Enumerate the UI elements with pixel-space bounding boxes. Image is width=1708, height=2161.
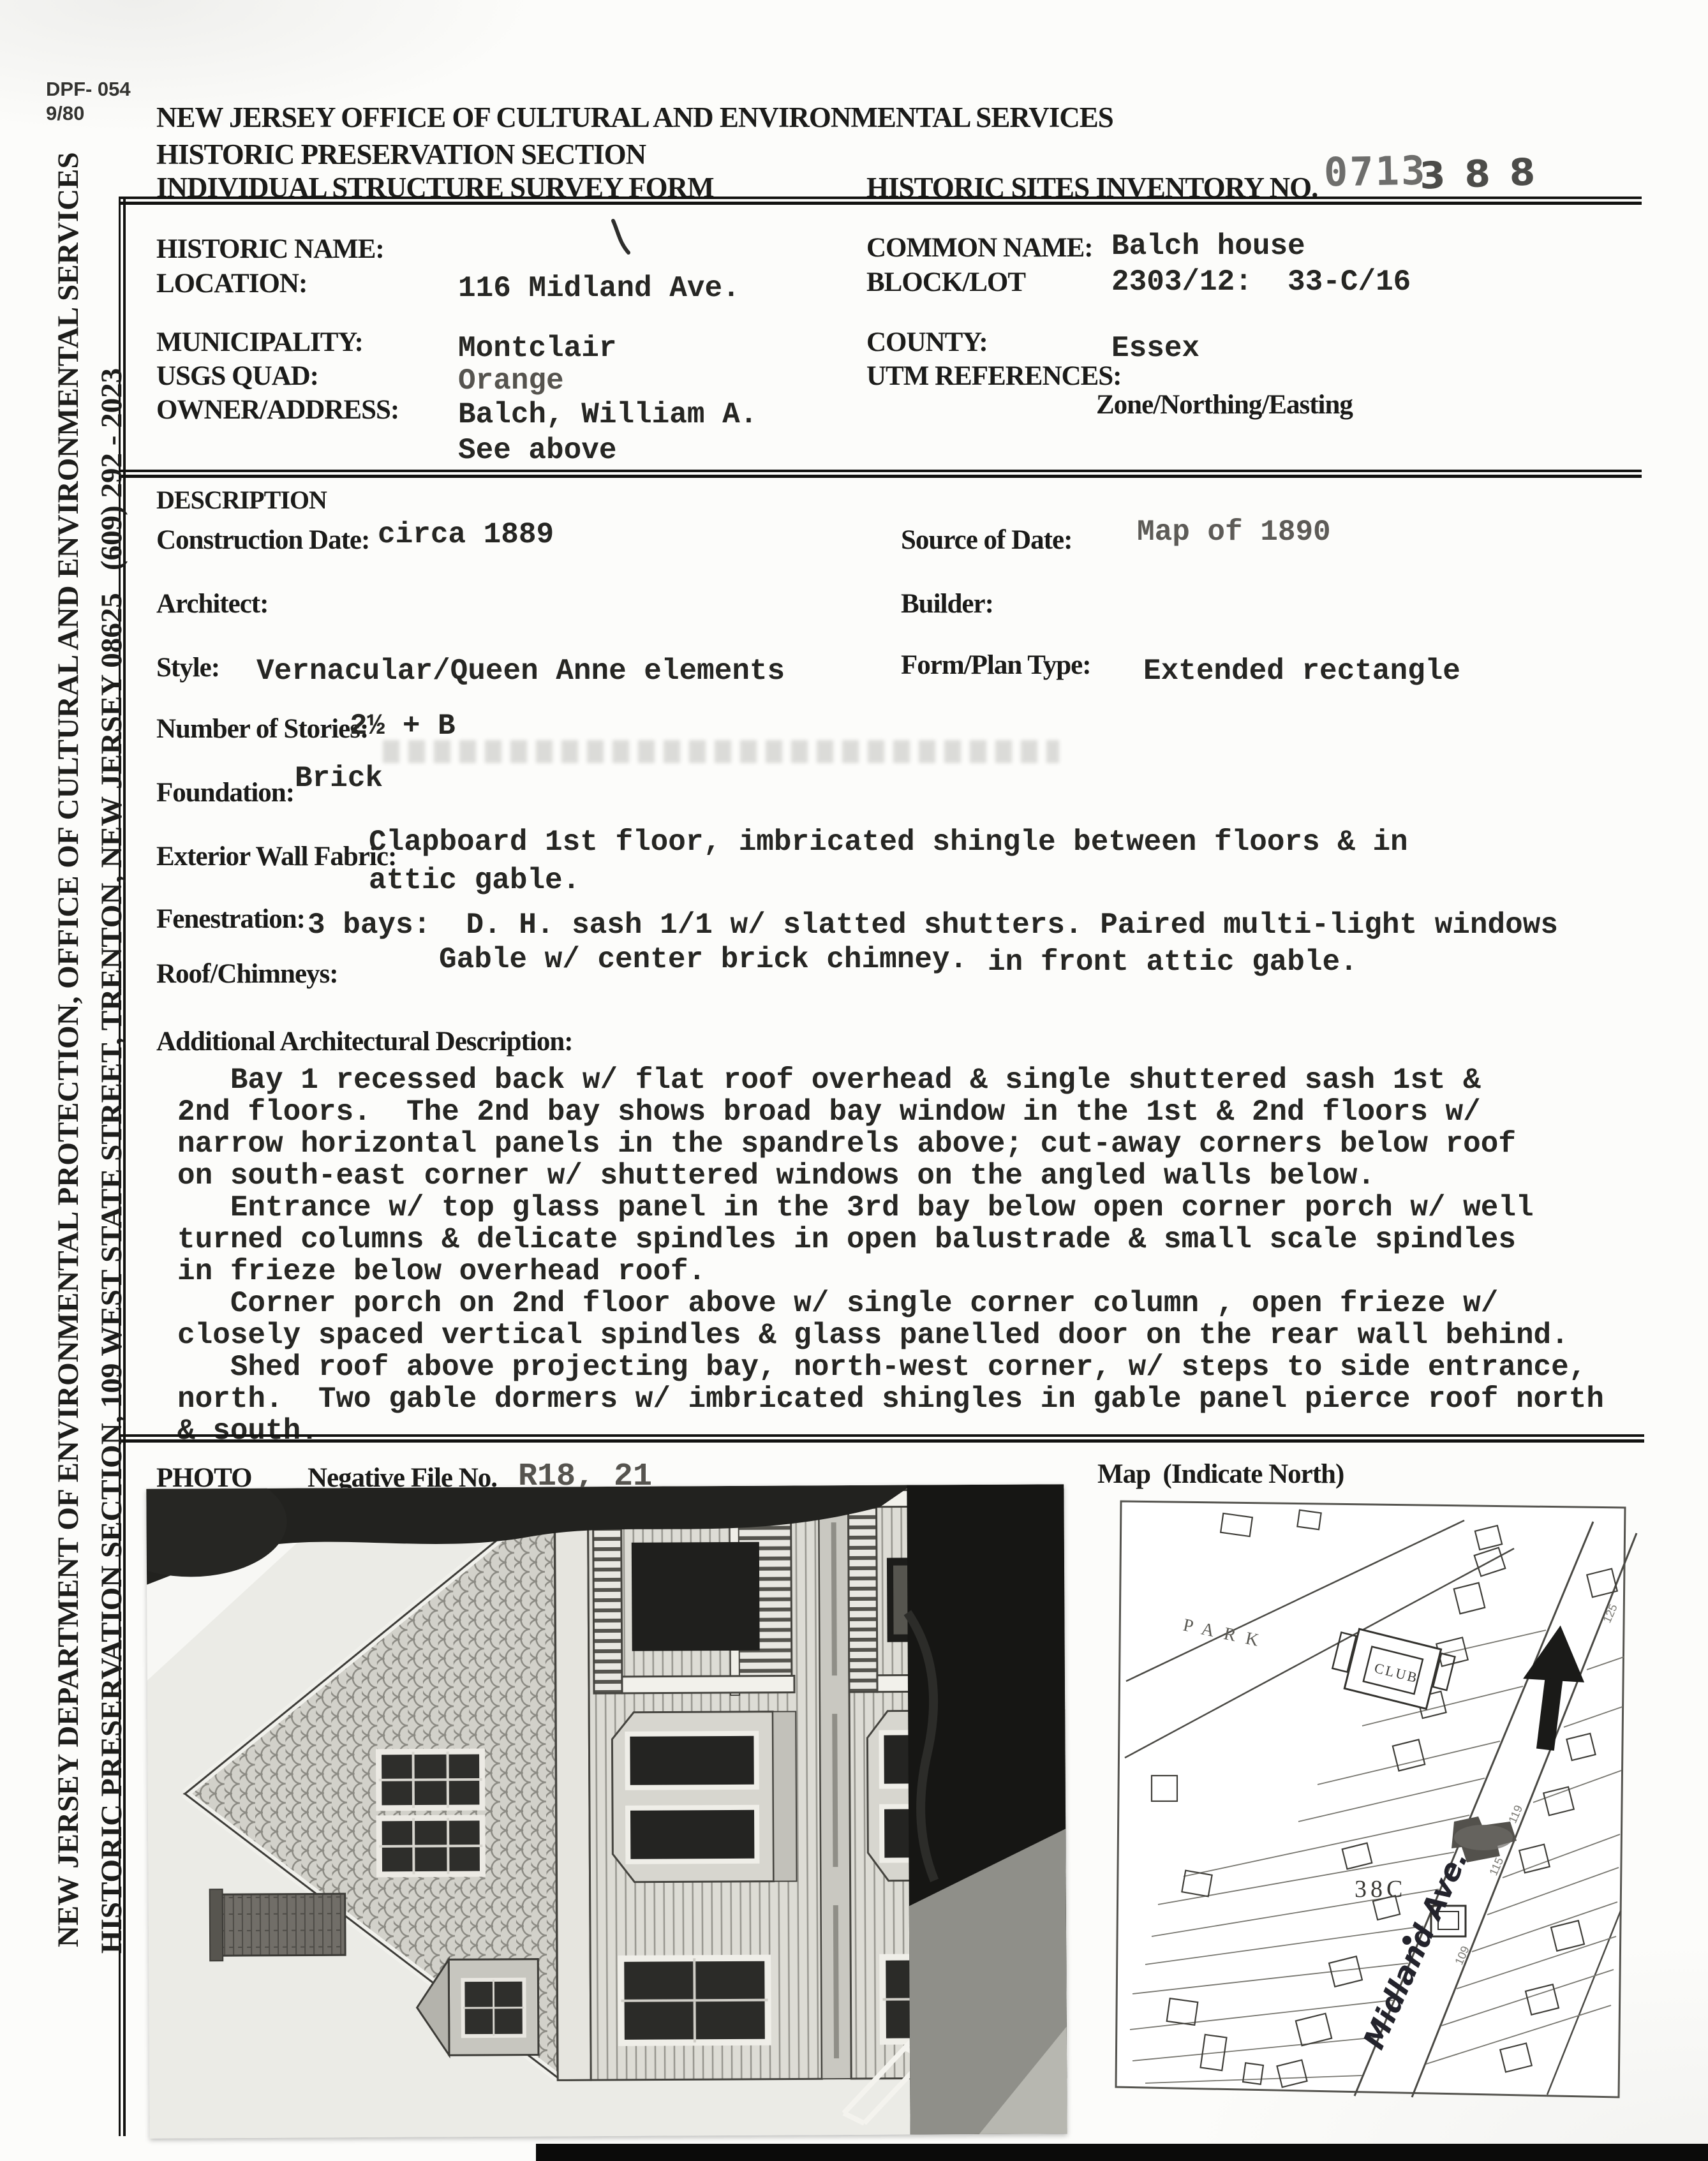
description-line: narrow horizontal panels in the spandrel… xyxy=(177,1128,1607,1160)
historic-name-label: HISTORIC NAME: xyxy=(156,234,384,265)
description-heading: DESCRIPTION xyxy=(156,485,327,515)
style-label: Style: xyxy=(156,652,219,683)
fenestration-value-line2: in front attic gable. xyxy=(988,946,1358,979)
county-value: Essex xyxy=(1111,332,1199,365)
photo-section-rule xyxy=(120,1434,1644,1443)
foundation-label: Foundation: xyxy=(156,777,294,808)
sidebar-address-line: HISTORIC PRESERVATION SECTION, 109 WEST … xyxy=(94,387,129,1954)
owner-address-value2: See above xyxy=(458,434,616,467)
roof-chimneys-label: Roof/Chimneys: xyxy=(156,958,338,990)
description-line: Shed roof above projecting bay, north-we… xyxy=(177,1351,1607,1383)
construction-date-value: circa 1889 xyxy=(378,518,554,551)
map-drawing: CLUB PARK 38C Midland Ave. 119 115 xyxy=(1107,1490,1640,2112)
municipality-label: MUNICIPALITY: xyxy=(156,327,363,358)
description-line: on south-east corner w/ shuttered window… xyxy=(177,1160,1607,1192)
wall-fabric-label: Exterior Wall Fabric: xyxy=(156,841,396,872)
map-label: Map (Indicate North) xyxy=(1097,1459,1344,1490)
location-label: LOCATION: xyxy=(156,268,307,299)
section-divider-rule xyxy=(120,470,1642,478)
description-line: 2nd floors. The 2nd bay shows broad bay … xyxy=(177,1096,1607,1128)
usgs-quad-label: USGS QUAD: xyxy=(156,360,318,392)
bleed-through-artifact xyxy=(383,740,1059,763)
description-line: Corner porch on 2nd floor above w/ singl… xyxy=(177,1288,1607,1319)
owner-address-value: Balch, William A. xyxy=(458,398,757,431)
inventory-number-stamp: 0713 xyxy=(1323,147,1427,196)
common-name-value: Balch house xyxy=(1111,230,1305,263)
survey-form-page: DPF- 054 9/80 NEW JERSEY OFFICE OF CULTU… xyxy=(0,0,1708,2161)
header-agency: NEW JERSEY OFFICE OF CULTURAL AND ENVIRO… xyxy=(156,101,1113,134)
description-line: north. Two gable dormers w/ imbricated s… xyxy=(177,1383,1607,1415)
block-lot-label: BLOCK/LOT xyxy=(866,267,1025,298)
stories-label: Number of Stories: xyxy=(156,713,368,745)
description-line: in frieze below overhead roof. xyxy=(177,1256,1607,1288)
additional-description-paragraph: Bay 1 recessed back w/ flat roof overhea… xyxy=(177,1064,1607,1447)
header-section: HISTORIC PRESERVATION SECTION xyxy=(156,138,646,171)
scan-edge-band xyxy=(536,2144,1708,2161)
pen-mark xyxy=(609,218,637,258)
header-divider-rule xyxy=(120,197,1642,205)
utm-zone-sublabel: Zone/Northing/Easting xyxy=(1096,389,1353,420)
municipality-value: Montclair xyxy=(458,332,616,365)
owner-address-label: OWNER/ADDRESS: xyxy=(156,394,399,426)
architect-label: Architect: xyxy=(156,588,268,620)
source-of-date-value: Map of 1890 xyxy=(1137,516,1331,549)
house-photo-drawing xyxy=(146,1484,1067,2139)
county-label: COUNTY: xyxy=(866,327,988,358)
wall-fabric-value-line2: attic gable. xyxy=(369,864,580,897)
form-plan-value: Extended rectangle xyxy=(1143,655,1460,688)
form-number: DPF- 054 xyxy=(46,78,131,101)
additional-description-heading: Additional Architectural Description: xyxy=(156,1026,573,1057)
form-date: 9/80 xyxy=(46,102,84,125)
construction-date-label: Construction Date: xyxy=(156,524,369,556)
description-line: Bay 1 recessed back w/ flat roof overhea… xyxy=(177,1064,1607,1096)
builder-label: Builder: xyxy=(901,588,993,620)
utm-references-label: UTM REFERENCES: xyxy=(866,360,1122,392)
house-photograph xyxy=(146,1484,1067,2139)
usgs-quad-value: Orange xyxy=(458,364,564,397)
source-of-date-label: Source of Date: xyxy=(901,524,1072,556)
description-line: closely spaced vertical spindles & glass… xyxy=(177,1319,1607,1351)
block-38c-label: 38C xyxy=(1355,1876,1406,1903)
fenestration-value-line1: 3 bays: D. H. sash 1/1 w/ slatted shutte… xyxy=(308,909,1558,942)
common-name-label: COMMON NAME: xyxy=(866,232,1093,264)
wall-fabric-value-line1: Clapboard 1st floor, imbricated shingle … xyxy=(369,826,1408,859)
foundation-value: Brick xyxy=(295,762,383,795)
chimney xyxy=(218,1894,345,1956)
bay-window-2nd xyxy=(612,1711,796,1882)
sidebar-agency-line: NEW JERSEY DEPARTMENT OF ENVIRONMENTAL P… xyxy=(51,339,85,1947)
inventory-number-handwritten: 388 xyxy=(1419,149,1555,197)
block-lot-value: 2303/12: 33-C/16 xyxy=(1111,265,1411,299)
fenestration-label: Fenestration: xyxy=(156,903,305,935)
description-line: Entrance w/ top glass panel in the 3rd b… xyxy=(177,1192,1607,1224)
stories-value: 2½ + B xyxy=(350,709,456,743)
description-line: turned columns & delicate spindles in op… xyxy=(177,1224,1607,1256)
location-map: CLUB PARK 38C Midland Ave. 119 115 xyxy=(1107,1490,1640,2112)
style-value: Vernacular/Queen Anne elements xyxy=(256,655,785,688)
roof-chimneys-value: Gable w/ center brick chimney. xyxy=(439,943,967,976)
location-value: 116 Midland Ave. xyxy=(458,272,740,305)
form-plan-label: Form/Plan Type: xyxy=(901,650,1091,681)
